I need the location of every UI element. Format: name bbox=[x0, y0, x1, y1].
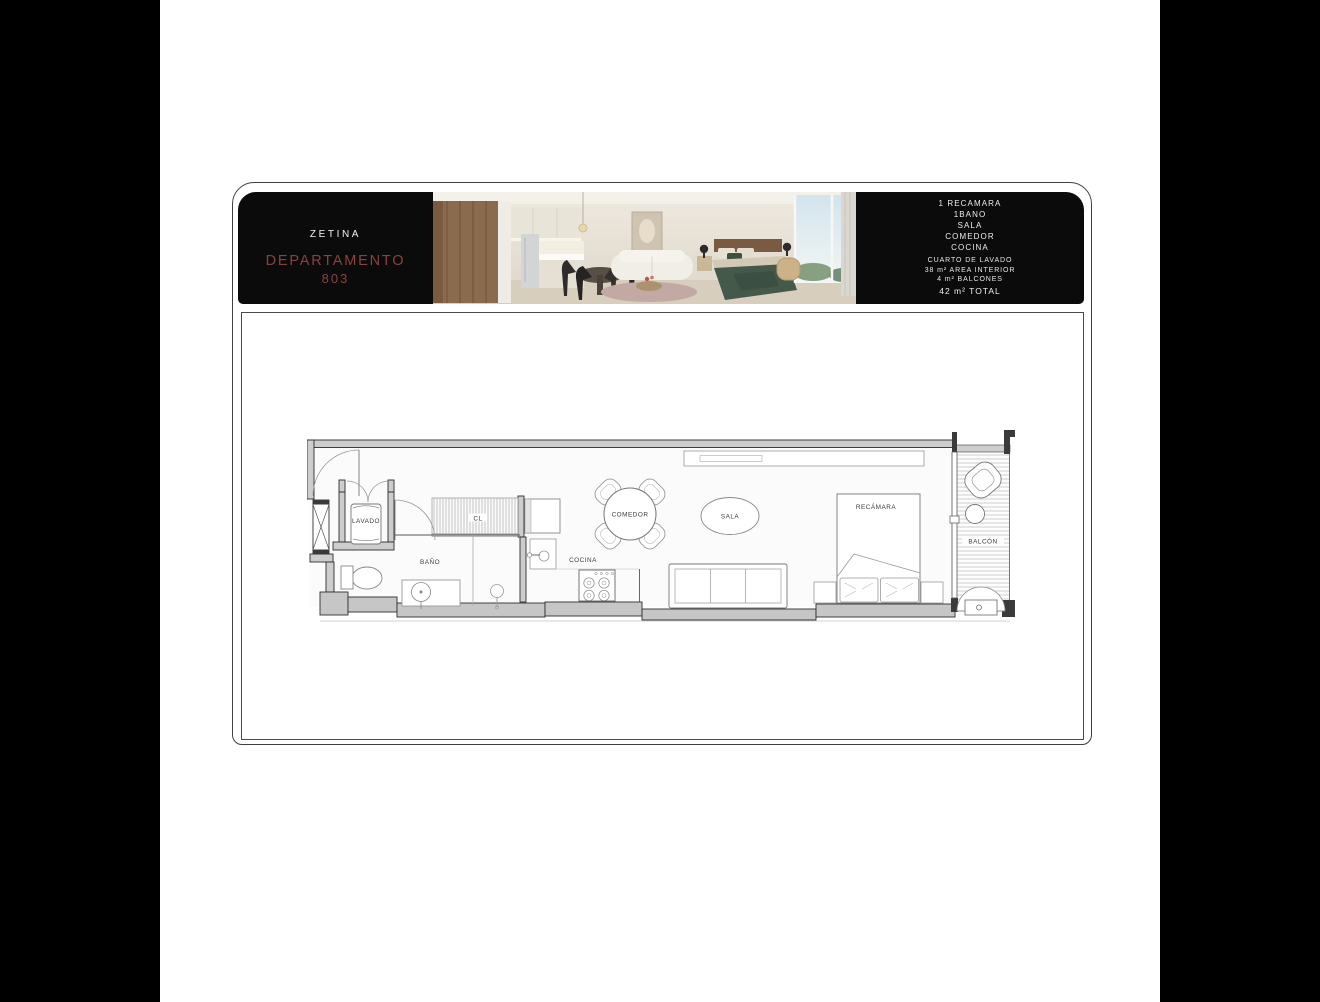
wall-balcony-top bbox=[954, 445, 1010, 452]
room-label-balcon: BALCÓN bbox=[968, 537, 997, 546]
unit-photo bbox=[433, 192, 856, 304]
vanity-sink-icon bbox=[402, 580, 460, 609]
floor-plan-frame: LAVADO BAÑO CL COCINA COMEDOR SALA RECÁM… bbox=[241, 312, 1084, 740]
balcony-table-icon bbox=[966, 505, 985, 524]
banner-title-panel: ZETINA DEPARTAMENTO 803 bbox=[238, 192, 433, 304]
room-label-comedor: COMEDOR bbox=[612, 512, 649, 519]
room-label-sala: SALA bbox=[721, 514, 740, 521]
total-area: 42 m² TOTAL bbox=[856, 286, 1084, 296]
refrigerator-icon bbox=[525, 499, 560, 533]
room-label-bano: BAÑO bbox=[420, 557, 440, 566]
room-label-cocina: COCINA bbox=[569, 557, 597, 564]
listing-card: ZETINA DEPARTAMENTO 803 bbox=[232, 182, 1092, 745]
feature-line: 1 RECAMARA bbox=[856, 198, 1084, 209]
service-shaft bbox=[313, 500, 329, 554]
feature-line: SALA bbox=[856, 220, 1084, 231]
left-black-bar bbox=[0, 0, 160, 1002]
toilet-icon bbox=[341, 566, 382, 589]
room-label-lavado: LAVADO bbox=[352, 518, 380, 525]
nightstand bbox=[814, 582, 836, 603]
area-details: CUARTO DE LAVADO 38 m² AREA INTERIOR 4 m… bbox=[856, 256, 1084, 296]
console-cabinet bbox=[684, 451, 924, 466]
banner-specs-panel: 1 RECAMARA 1BANO SALA COMEDOR COCINA CUA… bbox=[856, 192, 1084, 304]
page: ZETINA DEPARTAMENTO 803 bbox=[0, 0, 1320, 1002]
building-name: ZETINA bbox=[238, 229, 433, 240]
unit-number: 803 bbox=[238, 271, 433, 286]
floor-plan: LAVADO BAÑO CL COCINA COMEDOR SALA RECÁM… bbox=[307, 430, 1019, 624]
right-black-bar bbox=[1160, 0, 1320, 1002]
feature-line: COMEDOR bbox=[856, 231, 1084, 242]
sofa-icon bbox=[669, 564, 787, 608]
ac-unit-icon bbox=[965, 600, 997, 615]
feature-line: 1BANO bbox=[856, 209, 1084, 220]
detail-line: 38 m² AREA INTERIOR bbox=[856, 266, 1084, 276]
room-label-cl: CL bbox=[473, 516, 482, 523]
stove-icon bbox=[579, 570, 615, 601]
header-banner: ZETINA DEPARTAMENTO 803 bbox=[238, 192, 1084, 304]
wall-top bbox=[307, 440, 954, 448]
nightstand bbox=[921, 582, 943, 603]
unit-title: DEPARTAMENTO bbox=[238, 253, 433, 269]
detail-line: CUARTO DE LAVADO bbox=[856, 256, 1084, 266]
feature-line: COCINA bbox=[856, 242, 1084, 253]
interior-render-illustration bbox=[433, 192, 856, 304]
detail-line: 4 m² BALCONES bbox=[856, 275, 1084, 285]
wall-bottom bbox=[320, 592, 348, 615]
room-label-recamara: RECÁMARA bbox=[856, 502, 896, 511]
kitchen-sink-icon bbox=[527, 539, 556, 569]
